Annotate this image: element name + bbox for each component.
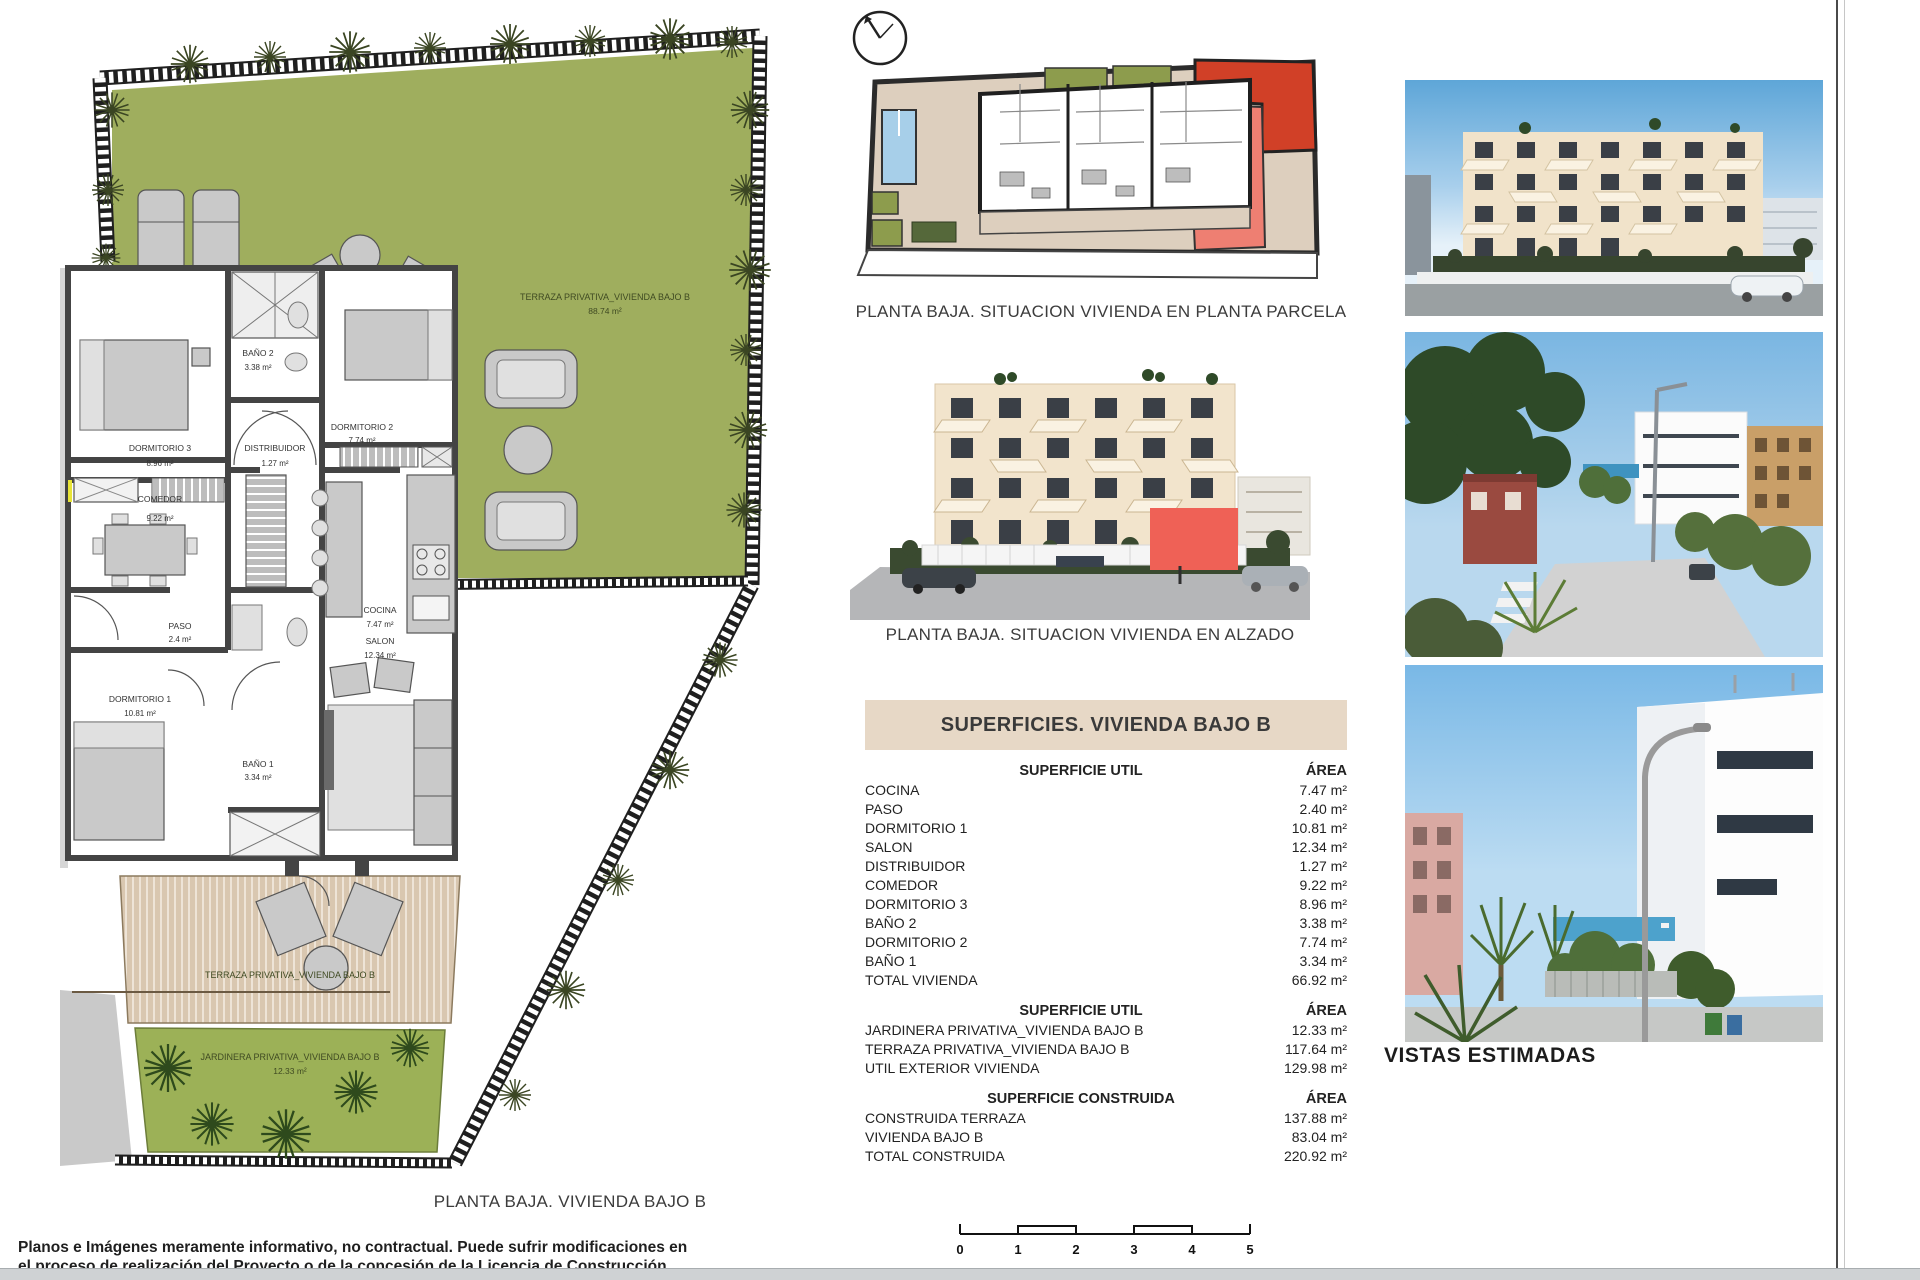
svg-text:3.38 m²: 3.38 m² — [244, 363, 271, 372]
svg-text:7.74 m²: 7.74 m² — [348, 436, 375, 445]
elevation-drawing — [850, 362, 1330, 620]
table-row: DISTRIBUIDOR1.27 m² — [865, 857, 1347, 876]
section-header: SUPERFICIE CONSTRUIDA — [865, 1090, 1237, 1109]
site-plan-caption: PLANTA BAJA. SITUACION VIVIENDA EN PLANT… — [855, 302, 1347, 322]
svg-text:3.34 m²: 3.34 m² — [244, 773, 271, 782]
table-row: CONSTRUIDA TERRAZA137.88 m² — [865, 1109, 1347, 1128]
area-column-header: ÁREA — [1237, 1002, 1347, 1021]
area-column-header: ÁREA — [1237, 762, 1347, 781]
floor-plan-drawing: TERRAZA PRIVATIVA_VIVIENDA BAJO B 88.74 … — [60, 10, 820, 1245]
page-bottom-bar — [0, 1268, 1920, 1280]
jardinera-area: 12.33 m² — [273, 1066, 307, 1076]
plan-sheet: TERRAZA PRIVATIVA_VIVIENDA BAJO B 88.74 … — [0, 0, 1920, 1280]
section-header: SUPERFICIE UTIL — [865, 762, 1237, 781]
table-row: DORMITORIO 38.96 m² — [865, 895, 1347, 914]
table-row: BAÑO 23.38 m² — [865, 914, 1347, 933]
svg-text:SALON: SALON — [366, 636, 395, 646]
table-row: BAÑO 13.34 m² — [865, 952, 1347, 971]
svg-text:1: 1 — [1014, 1242, 1021, 1257]
garden-area: 88.74 m² — [588, 306, 622, 316]
table-row: DORMITORIO 27.74 m² — [865, 933, 1347, 952]
surfaces-section-util: SUPERFICIE UTILÁREA COCINA7.47 m² PASO2.… — [865, 762, 1347, 990]
table-row: TOTAL CONSTRUIDA220.92 m² — [865, 1147, 1347, 1166]
svg-text:COMEDOR: COMEDOR — [138, 494, 182, 504]
svg-text:9.22 m²: 9.22 m² — [146, 514, 173, 523]
elevation-caption: PLANTA BAJA. SITUACION VIVIENDA EN ALZAD… — [850, 625, 1330, 645]
table-row: TERRAZA PRIVATIVA_VIVIENDA BAJO B117.64 … — [865, 1040, 1347, 1059]
scale-bar: 0 1 2 3 4 5 — [955, 1220, 1265, 1266]
svg-text:PASO: PASO — [169, 621, 192, 631]
svg-text:2.4 m²: 2.4 m² — [169, 635, 192, 644]
svg-text:12.34 m²: 12.34 m² — [364, 651, 396, 660]
svg-text:BAÑO 2: BAÑO 2 — [242, 348, 273, 358]
svg-text:10.81 m²: 10.81 m² — [124, 709, 156, 718]
surfaces-title: SUPERFICIES. VIVIENDA BAJO B — [865, 700, 1347, 750]
deck-label: TERRAZA PRIVATIVA_VIVIENDA BAJO B — [205, 970, 375, 980]
table-row: JARDINERA PRIVATIVA_VIVIENDA BAJO B12.33… — [865, 1021, 1347, 1040]
svg-text:0: 0 — [956, 1242, 963, 1257]
vistas-title: VISTAS ESTIMADAS — [1384, 1044, 1596, 1068]
surfaces-section-construida: SUPERFICIE CONSTRUIDAÁREA CONSTRUIDA TER… — [865, 1090, 1347, 1166]
site-plan-drawing — [850, 52, 1330, 292]
svg-text:2: 2 — [1072, 1242, 1079, 1257]
surfaces-section-exterior: SUPERFICIE UTILÁREA JARDINERA PRIVATIVA_… — [865, 1002, 1347, 1078]
floor-plan-caption: PLANTA BAJA. VIVIENDA BAJO B — [370, 1192, 770, 1212]
disclaimer-line-1: Planos e Imágenes meramente informativo,… — [18, 1238, 687, 1257]
section-header: SUPERFICIE UTIL — [865, 1002, 1237, 1021]
photo-building-render — [1405, 80, 1823, 316]
roof-palms-icon — [994, 369, 1218, 385]
page-right-border — [1836, 0, 1838, 1268]
photo-street-view-2 — [1405, 665, 1823, 1042]
svg-text:4: 4 — [1188, 1242, 1196, 1257]
svg-text:DORMITORIO 3: DORMITORIO 3 — [129, 443, 191, 453]
table-row: COMEDOR9.22 m² — [865, 876, 1347, 895]
svg-text:5: 5 — [1246, 1242, 1253, 1257]
table-row: UTIL EXTERIOR VIVIENDA129.98 m² — [865, 1059, 1347, 1078]
table-row: TOTAL VIVIENDA66.92 m² — [865, 971, 1347, 990]
table-row: VIVIENDA BAJO B83.04 m² — [865, 1128, 1347, 1147]
svg-text:8.96 m²: 8.96 m² — [146, 459, 173, 468]
photo-street-view-1 — [1405, 332, 1823, 657]
table-row: SALON12.34 m² — [865, 838, 1347, 857]
table-row: COCINA7.47 m² — [865, 781, 1347, 800]
elevation-highlight-red — [1150, 508, 1238, 570]
area-column-header: ÁREA — [1237, 1090, 1347, 1109]
svg-text:DORMITORIO 1: DORMITORIO 1 — [109, 694, 171, 704]
svg-text:DORMITORIO 2: DORMITORIO 2 — [331, 422, 393, 432]
jardinera-label: JARDINERA PRIVATIVA_VIVIENDA BAJO B — [200, 1052, 379, 1062]
surfaces-table: SUPERFICIES. VIVIENDA BAJO B SUPERFICIE … — [865, 700, 1347, 1166]
svg-text:1.27 m²: 1.27 m² — [261, 459, 288, 468]
garden-label: TERRAZA PRIVATIVA_VIVIENDA BAJO B — [520, 292, 690, 302]
svg-text:DISTRIBUIDOR: DISTRIBUIDOR — [245, 443, 306, 453]
svg-text:7.47 m²: 7.47 m² — [366, 620, 393, 629]
table-row: DORMITORIO 110.81 m² — [865, 819, 1347, 838]
svg-text:3: 3 — [1130, 1242, 1137, 1257]
table-row: PASO2.40 m² — [865, 800, 1347, 819]
svg-text:COCINA: COCINA — [363, 605, 396, 615]
page-right-border-light — [1844, 0, 1845, 1268]
svg-text:BAÑO 1: BAÑO 1 — [242, 759, 273, 769]
